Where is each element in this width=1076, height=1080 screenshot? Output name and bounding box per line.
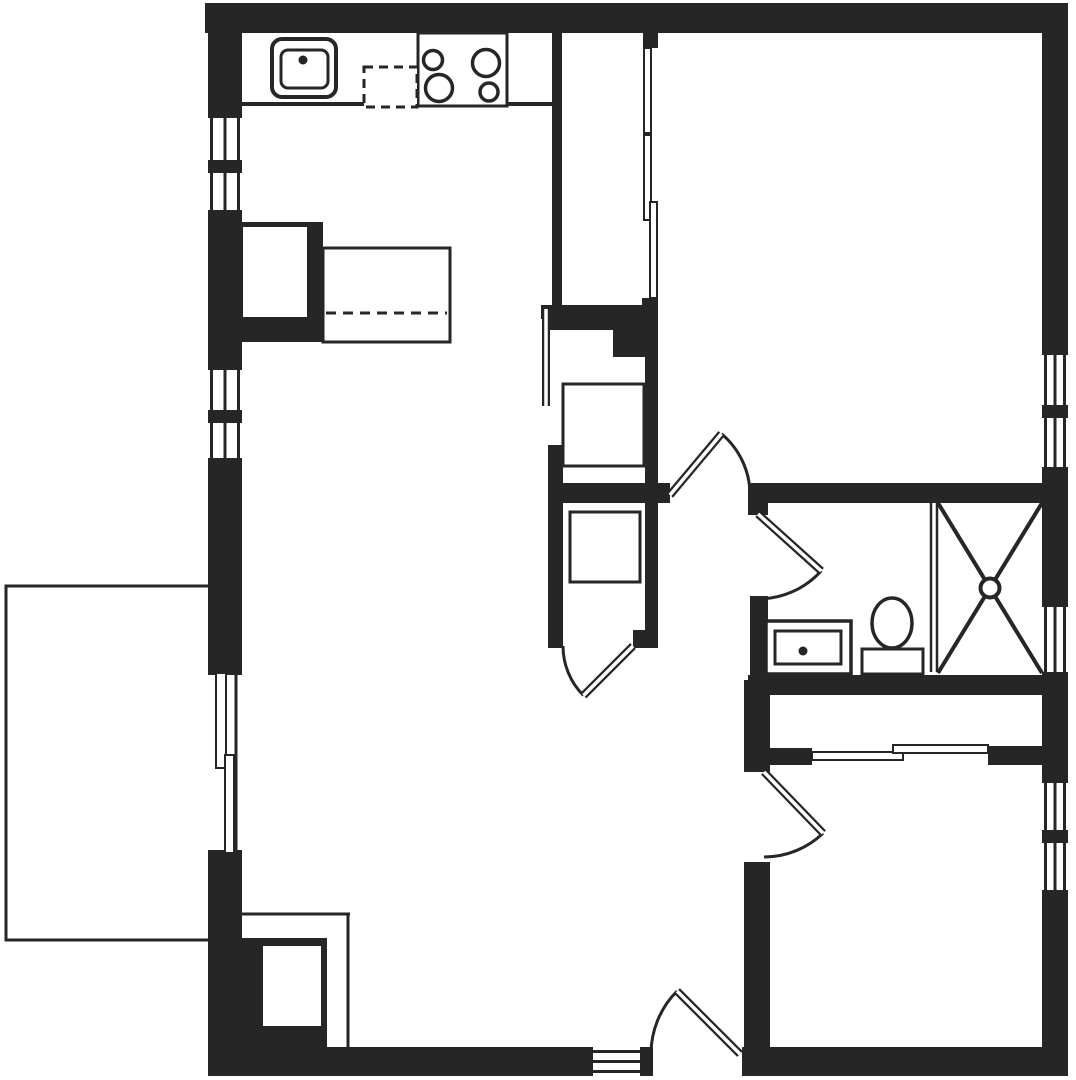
bedroom1-window-pane1-glass-line [1054, 355, 1057, 405]
hall-closet-door-leaf-core [584, 646, 633, 695]
bedroom2-west-wall-lower [744, 862, 770, 1047]
bedroom2-door-leaf-core [764, 772, 823, 833]
entry-sidelight-window-glass-line [593, 1070, 640, 1073]
hall-north-wall [548, 483, 670, 503]
kitchen-sink-faucet-dot [299, 56, 308, 65]
bathroom-window-glass-line [1044, 607, 1047, 672]
kitchen-dishwasher [364, 67, 417, 107]
bedroom2-closet-stub-right [988, 746, 1042, 765]
bedroom2-closet-slider-b [893, 745, 988, 753]
left-wall-window2-pane1-glass-line [237, 370, 240, 410]
closet1-door-stub-top [643, 33, 658, 48]
hall-closet-door-swing-arc [563, 646, 584, 695]
closet3-door-stub [633, 630, 658, 648]
bottom-exterior-wall-right [742, 1047, 1068, 1076]
bedroom2-window-pane2-glass-line [1063, 843, 1066, 890]
stove-burner-small-right [480, 83, 498, 101]
stove-burner-large-left [426, 75, 453, 102]
shower-drain [981, 579, 1000, 598]
left-wall-window1-pane2-glass-line [224, 173, 227, 210]
floor-plan-page [0, 0, 1076, 1080]
bedroom1-west-wall [645, 312, 658, 648]
left-wall-window2-mullion [208, 410, 242, 423]
left-wall-window2-pane2-glass-line [224, 423, 227, 458]
left-wall-window1-pane1-glass-line [237, 118, 240, 160]
bathroom-vanity-sink [775, 631, 841, 664]
bottom-exterior-wall-left [208, 1047, 593, 1076]
bedroom1-window-pane2-glass-line [1063, 418, 1066, 467]
left-wall-window1-pane1-glass-line [224, 118, 227, 160]
bedroom2-window-pane2-glass-line [1054, 843, 1057, 890]
vanity-faucet-dot [799, 647, 808, 656]
bedroom1-closet-slider-c [650, 202, 657, 298]
bedroom2-west-wall-upper [744, 680, 770, 772]
hall-bedroom1-door-swing-arc [721, 434, 750, 495]
left-wall-window2-pane1-glass-line [210, 370, 213, 410]
right-exterior-wall-mid2 [1042, 672, 1068, 783]
bedroom2-closet-stub-left [770, 748, 812, 765]
bedroom1-window-pane1-glass-line [1063, 355, 1066, 405]
hall-closet-appliance [570, 512, 640, 582]
kitchen-island-counter [323, 248, 450, 342]
hall-bedroom1-door-leaf-core [670, 434, 721, 495]
balcony-outline [6, 586, 236, 940]
left-wall-window1-pane1-glass-line [210, 118, 213, 160]
entry-sidelight-window-glass-line [593, 1050, 640, 1053]
bedroom1-closet-slider-a [644, 48, 651, 133]
bedroom2-closet-slider-a [812, 752, 903, 760]
right-wall-window1-mullion [1042, 405, 1068, 418]
bedroom2-window-pane1-glass-line [1063, 783, 1066, 830]
bathroom-door-leaf-core [758, 514, 821, 571]
right-wall-window3-mullion [1042, 830, 1068, 843]
balcony-slider-panel-b [225, 755, 234, 853]
bathroom-window-glass-line [1054, 607, 1057, 672]
top-exterior-wall [205, 3, 1068, 33]
entry-door-swing-arc [651, 991, 677, 1054]
toilet-bowl [872, 598, 912, 648]
left-wall-window2-pane2-glass-line [237, 423, 240, 458]
bathroom-door-swing-arc [758, 571, 821, 599]
right-exterior-wall-mid1 [1042, 467, 1068, 607]
bedroom1-window-pane2-glass-line [1054, 418, 1057, 467]
utility-closet-west-wall [548, 445, 563, 648]
left-wall-window1-mullion [208, 160, 242, 173]
kitchen-closet-west-wall [552, 33, 562, 305]
bedroom2-door-swing-arc [764, 833, 823, 857]
utility-closet-appliance [563, 384, 644, 466]
kitchen-island-cabinet-inset [243, 227, 307, 317]
bedroom2-window-pane1-glass-line [1054, 783, 1057, 830]
toilet-tank [862, 649, 923, 674]
left-exterior-wall-upper [208, 3, 242, 118]
left-wall-window1-pane2-glass-line [237, 173, 240, 210]
stove-burner-small-left [424, 51, 443, 70]
left-wall-window1-pane2-glass-line [210, 173, 213, 210]
left-exterior-wall-mid [208, 210, 242, 370]
bathroom-door-stub [748, 503, 768, 515]
bathroom-south-wall [748, 675, 1042, 695]
bathroom-north-wall [748, 483, 1042, 503]
bedroom1-window-pane2-glass-line [1044, 418, 1047, 467]
entry-sidelight-window-glass-line [593, 1060, 640, 1063]
entry-door-leaf-core [677, 991, 740, 1054]
bedroom2-window-pane2-glass-line [1044, 843, 1047, 890]
entry-closet-fixture-inset [263, 946, 321, 1026]
left-wall-window2-pane1-glass-line [224, 370, 227, 410]
bedroom2-window-pane1-glass-line [1044, 783, 1047, 830]
stove-burner-large-right [473, 50, 500, 77]
left-wall-window2-pane2-glass-line [210, 423, 213, 458]
bedroom1-window-pane1-glass-line [1044, 355, 1047, 405]
balcony-slider-panel-a [216, 673, 226, 768]
kitchen-sink-basin [281, 50, 328, 88]
floor-plan-canvas [0, 0, 1076, 1080]
closet-divider-wall [548, 305, 657, 330]
right-exterior-wall-upper [1042, 3, 1068, 355]
bathroom-window-glass-line [1063, 607, 1066, 672]
